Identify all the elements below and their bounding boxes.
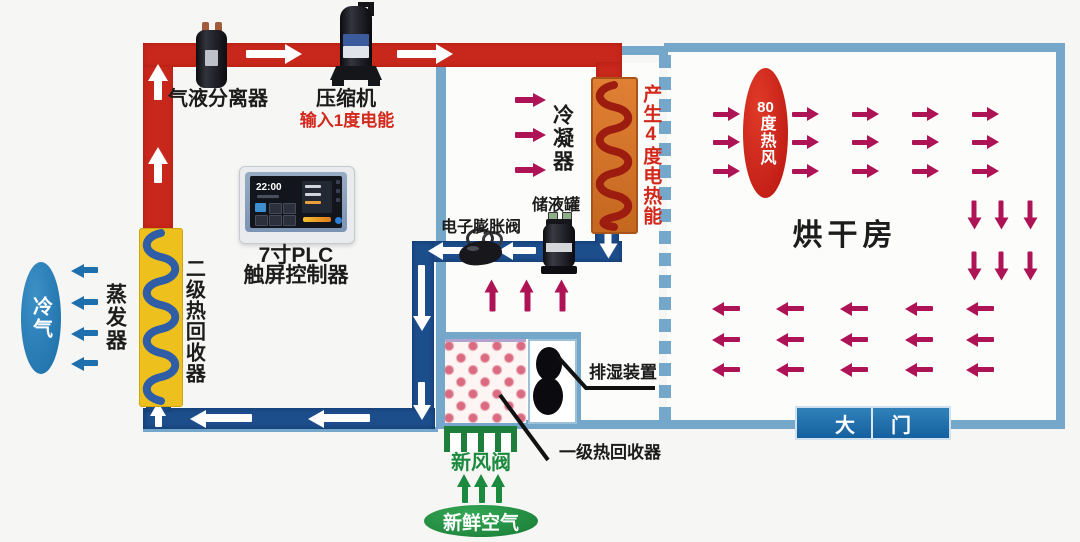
arrow-shaft xyxy=(792,112,808,117)
condenser-air-flow-arrow xyxy=(515,93,546,108)
receiver-band xyxy=(546,243,572,252)
arrow-head xyxy=(807,135,819,149)
condenser-coil xyxy=(591,77,638,234)
heat-output-label: 产生4度电热能 xyxy=(640,84,661,226)
hot-air-flow-arrow xyxy=(792,164,819,178)
arrow-shaft xyxy=(155,415,162,427)
arrow-shaft xyxy=(977,338,994,343)
arrow-shaft xyxy=(972,252,977,270)
blue-pipe-bottom-line xyxy=(143,408,435,429)
arrow-head xyxy=(776,363,788,377)
arrow-head xyxy=(927,107,939,121)
plc-time: 22:00 xyxy=(256,182,282,193)
arrow-shaft xyxy=(1028,252,1033,270)
arrow-shaft xyxy=(723,338,740,343)
condenser-outlet-flow-arrow xyxy=(599,234,617,259)
arrow-head xyxy=(533,93,546,107)
arrow-head xyxy=(776,333,788,347)
arrow-head xyxy=(967,269,981,281)
arrow-head xyxy=(994,269,1008,281)
plc-btn-3[interactable] xyxy=(283,203,296,214)
top-link-wall xyxy=(620,46,668,55)
hot-air-flow-arrow xyxy=(972,164,999,178)
return-air-flow-arrow xyxy=(966,363,994,377)
return-air-flow-arrow xyxy=(966,302,994,316)
arrow-shaft xyxy=(972,140,988,145)
hot-air-flow-arrow xyxy=(972,135,999,149)
arrow-shaft xyxy=(713,169,729,174)
compressor-foot-right xyxy=(368,80,380,86)
arrow-shaft xyxy=(787,368,804,373)
arrow-head xyxy=(599,244,617,259)
arrow-shaft xyxy=(713,112,729,117)
arrow-head xyxy=(807,107,819,121)
arrow-shaft xyxy=(524,291,530,311)
arrow-head xyxy=(520,279,534,292)
plc-btn-6[interactable] xyxy=(283,215,296,226)
hot-air-down-flow-arrow xyxy=(994,201,1008,230)
hot-air-down-flow-arrow xyxy=(1023,252,1037,281)
return-air-flow-arrow xyxy=(905,302,933,316)
return-air-flow-arrow xyxy=(905,363,933,377)
arrow-shaft xyxy=(515,132,534,138)
arrow-shaft xyxy=(397,50,437,58)
arrow-head xyxy=(966,333,978,347)
hot-air-ellipse: 80 度热风 xyxy=(743,68,788,198)
fresh-air-ellipse: 新鲜空气 xyxy=(424,505,538,537)
arrow-shaft xyxy=(787,338,804,343)
arrow-head xyxy=(867,164,879,178)
gas-liquid-separator xyxy=(196,22,230,88)
arrow-shaft xyxy=(852,112,868,117)
arrow-shaft xyxy=(83,299,98,305)
dehumidifier-label: 排湿装置 xyxy=(583,363,663,382)
hot-air-flow-arrow xyxy=(792,107,819,121)
cold-air-ellipse: 冷气 xyxy=(21,262,61,374)
return-air-flow-arrow xyxy=(776,363,804,377)
arrow-head xyxy=(712,302,724,316)
hot-air-flow-arrow xyxy=(713,135,740,149)
compressor xyxy=(330,0,382,88)
plc-side-key-1[interactable] xyxy=(336,180,340,184)
arrow-head xyxy=(966,363,978,377)
arrow-shaft xyxy=(515,97,534,103)
cold-air-flow-arrow xyxy=(71,356,98,371)
arrow-head xyxy=(867,135,879,149)
arrow-shaft xyxy=(489,291,495,311)
arrow-head xyxy=(71,357,84,371)
condenser-coil-serpentine xyxy=(593,79,636,232)
arrow-head xyxy=(987,107,999,121)
downcomer-flow-arrow xyxy=(413,265,431,331)
secondary-coil-serpentine xyxy=(140,229,182,406)
return-air-flow-arrow xyxy=(840,302,868,316)
dehumidifier-fan-bottom xyxy=(533,377,563,415)
arrow-head xyxy=(867,107,879,121)
hot-air-flow-arrow xyxy=(852,135,879,149)
arrow-head xyxy=(457,474,471,487)
condenser-air-flow-arrow xyxy=(515,128,546,143)
plc-status-row-2 xyxy=(305,193,321,196)
separator-label-patch xyxy=(205,50,218,66)
arrow-shaft xyxy=(792,169,808,174)
arrow-head xyxy=(285,44,302,64)
arrow-head xyxy=(491,474,505,487)
arrow-shaft xyxy=(912,169,928,174)
arrow-head xyxy=(485,279,499,292)
arrow-head xyxy=(71,296,84,310)
plc-controller: 22:00 xyxy=(239,166,355,244)
drying-room-door: 大门 xyxy=(795,406,951,440)
fresh-air-flow-arrow xyxy=(491,474,506,503)
plc-side-key-3[interactable] xyxy=(336,198,340,202)
arrow-shaft xyxy=(916,338,933,343)
secondary-recovery-label: 二级热回收器 xyxy=(182,258,204,384)
hot-air-flow-arrow xyxy=(972,107,999,121)
compressor-nameplate-lower xyxy=(343,46,369,58)
separator-label: 气液分离器 xyxy=(158,88,278,110)
arrow-shaft xyxy=(723,368,740,373)
cold-air-flow-arrow xyxy=(71,295,98,310)
arrow-shaft xyxy=(916,307,933,312)
arrow-head xyxy=(148,147,168,164)
arrow-head xyxy=(927,135,939,149)
arrow-shaft xyxy=(787,307,804,312)
door-divider xyxy=(871,408,873,438)
arrow-head xyxy=(712,333,724,347)
hot-air-flow-arrow xyxy=(912,135,939,149)
arrow-shaft xyxy=(972,169,988,174)
arrow-shaft xyxy=(419,382,426,406)
arrow-head xyxy=(1023,218,1037,230)
power-input-label: 输入1度电能 xyxy=(291,111,403,130)
arrow-shaft xyxy=(851,368,868,373)
cold-air-flow-arrow xyxy=(71,326,98,341)
hot-air-flow-arrow xyxy=(852,164,879,178)
arrow-shaft xyxy=(723,307,740,312)
plc-subtext-bar xyxy=(257,195,279,198)
evaporator-label: 蒸发器 xyxy=(103,283,127,352)
door-label: 大门 xyxy=(835,409,947,438)
arrow-head xyxy=(71,264,84,278)
plc-btn-1[interactable] xyxy=(255,203,266,212)
arrow-head xyxy=(905,302,917,316)
arrow-shaft xyxy=(1028,201,1033,219)
hot-air-label: 度热风 xyxy=(754,115,778,166)
return-air-flow-arrow xyxy=(776,333,804,347)
arrow-head xyxy=(987,135,999,149)
return-air-flow-arrow xyxy=(840,333,868,347)
arrow-shaft xyxy=(972,201,977,219)
receiver-tank xyxy=(541,212,577,274)
drying-room-top-wall xyxy=(664,43,1065,52)
arrow-head xyxy=(436,44,453,64)
return-air-flow-arrow xyxy=(776,302,804,316)
cold-air-label: 冷气 xyxy=(27,296,56,340)
red-top-flow-arrow xyxy=(246,44,302,64)
heat-pump-dryer-diagram: 大门 22:00 xyxy=(0,0,1080,542)
fresh-air-grille-bar-4 xyxy=(495,426,501,452)
return-air-flow-arrow xyxy=(905,333,933,347)
fresh-air-grille-bar-1 xyxy=(444,426,450,452)
hot-air-flow-arrow xyxy=(852,107,879,121)
arrow-head xyxy=(840,333,852,347)
hot-air-down-flow-arrow xyxy=(967,201,981,230)
valve-body xyxy=(458,238,504,267)
hot-air-down-flow-arrow xyxy=(994,252,1008,281)
arrow-shaft xyxy=(478,486,484,503)
arrow-head xyxy=(776,302,788,316)
return-air-flow-arrow xyxy=(712,363,740,377)
hot-air-flow-arrow xyxy=(792,135,819,149)
arrow-shaft xyxy=(972,112,988,117)
fresh-air-grille-bar-3 xyxy=(478,426,484,452)
arrow-shaft xyxy=(83,330,98,336)
fresh-air-label: 新鲜空气 xyxy=(443,508,519,535)
arrow-head xyxy=(308,410,324,428)
secondary-heat-recovery-coil xyxy=(139,228,183,407)
fresh-air-flow-arrow xyxy=(474,474,489,503)
arrow-shaft xyxy=(912,112,928,117)
plc-side-key-2[interactable] xyxy=(336,189,340,193)
plc-status-row-3 xyxy=(305,201,321,204)
plc-btn-5[interactable] xyxy=(269,215,282,226)
arrow-head xyxy=(967,218,981,230)
arrow-head xyxy=(533,163,546,177)
fresh-air-grille-bar-2 xyxy=(461,426,467,452)
arrow-head xyxy=(840,302,852,316)
compressor-label: 压缩机 xyxy=(306,88,386,110)
arrow-head xyxy=(71,327,84,341)
arrow-shaft xyxy=(912,140,928,145)
hot-air-down-flow-arrow xyxy=(1023,201,1037,230)
dehumidifier-fan-top xyxy=(536,347,562,381)
arrow-head xyxy=(148,64,168,81)
compressor-base xyxy=(330,66,382,80)
arrow-shaft xyxy=(515,167,534,173)
arrow-head xyxy=(533,128,546,142)
return-air-flow-arrow xyxy=(712,302,740,316)
arrow-head xyxy=(966,302,978,316)
plc-label-line2: 触屏控制器 xyxy=(232,264,360,288)
receiver-base xyxy=(541,266,577,274)
arrow-shaft xyxy=(205,414,252,422)
arrow-head xyxy=(413,405,431,420)
condenser-air-flow-arrow xyxy=(515,163,546,178)
recovered-air-flow-arrow xyxy=(555,279,570,311)
arrow-shaft xyxy=(83,360,98,366)
valve-highlight xyxy=(467,246,479,251)
arrow-shaft xyxy=(512,248,536,255)
arrow-shaft xyxy=(792,140,808,145)
hot-air-flow-arrow xyxy=(912,164,939,178)
cold-air-flow-arrow xyxy=(71,263,98,278)
red-top-flow-arrow xyxy=(397,44,453,64)
arrow-head xyxy=(840,363,852,377)
compressor-foot-left xyxy=(332,80,344,86)
arrow-shaft xyxy=(851,338,868,343)
arrow-shaft xyxy=(154,163,162,183)
hot-air-temp: 80 xyxy=(757,100,774,115)
primary-recovery-label: 一级热回收器 xyxy=(552,443,668,462)
arrow-head xyxy=(1023,269,1037,281)
drying-room-right-wall xyxy=(1056,43,1065,429)
drying-room-label: 烘干房 xyxy=(780,219,910,253)
arrow-head xyxy=(994,218,1008,230)
return-air-flow-arrow xyxy=(840,363,868,377)
arrow-head xyxy=(927,164,939,178)
expansion-valve-label: 电子膨胀阀 xyxy=(433,219,529,237)
recovered-air-flow-arrow xyxy=(485,279,500,311)
arrow-shaft xyxy=(83,267,98,273)
arrow-shaft xyxy=(461,486,467,503)
hot-air-flow-arrow xyxy=(912,107,939,121)
compressor-nameplate xyxy=(343,34,369,46)
arrow-shaft xyxy=(999,252,1004,270)
plc-btn-4[interactable] xyxy=(255,215,268,226)
arrow-shaft xyxy=(999,201,1004,219)
return-air-flow-arrow xyxy=(966,333,994,347)
return-air-flow-arrow xyxy=(712,333,740,347)
fresh-air-valve-label: 新风阀 xyxy=(442,452,520,474)
arrow-head xyxy=(905,333,917,347)
arrow-shaft xyxy=(977,307,994,312)
hot-air-flow-arrow xyxy=(713,107,740,121)
arrow-head xyxy=(474,474,488,487)
bottom-line-flow-arrow xyxy=(190,409,252,428)
fresh-air-flow-arrow xyxy=(457,474,472,503)
bottom-line-flow-arrow xyxy=(308,409,370,428)
arrow-head xyxy=(987,164,999,178)
arrow-head xyxy=(428,242,443,260)
arrow-shaft xyxy=(419,265,426,317)
plc-btn-2[interactable] xyxy=(269,203,282,214)
arrow-shaft xyxy=(713,140,729,145)
arrow-head xyxy=(728,107,740,121)
hot-air-down-flow-arrow xyxy=(967,252,981,281)
recovered-air-flow-arrow xyxy=(520,279,535,311)
arrow-shaft xyxy=(323,414,370,422)
red-riser-flow-arrow xyxy=(148,147,168,183)
arrow-shaft xyxy=(852,169,868,174)
arrow-shaft xyxy=(851,307,868,312)
arrow-shaft xyxy=(977,368,994,373)
arrow-shaft xyxy=(246,50,286,58)
plc-power-key[interactable] xyxy=(335,217,342,224)
arrow-head xyxy=(555,279,569,292)
arrow-head xyxy=(807,164,819,178)
arrow-shaft xyxy=(852,140,868,145)
arrow-head xyxy=(728,135,740,149)
plc-status-row-1 xyxy=(305,185,321,188)
arrow-shaft xyxy=(559,291,565,311)
arrow-head xyxy=(190,410,206,428)
receiver-label: 储液罐 xyxy=(524,197,588,215)
arrow-head xyxy=(712,363,724,377)
downcomer-flow-2-arrow xyxy=(413,382,431,420)
primary-heat-recovery-core xyxy=(445,339,526,423)
condenser-label: 冷凝器 xyxy=(550,104,574,173)
fresh-air-grille-bar-5 xyxy=(511,426,517,452)
arrow-head xyxy=(905,363,917,377)
arrow-shaft xyxy=(916,368,933,373)
arrow-head xyxy=(413,316,431,331)
hot-air-flow-arrow xyxy=(713,164,740,178)
plc-progress-bar[interactable] xyxy=(303,217,331,222)
arrow-shaft xyxy=(495,486,501,503)
arrow-head xyxy=(728,164,740,178)
